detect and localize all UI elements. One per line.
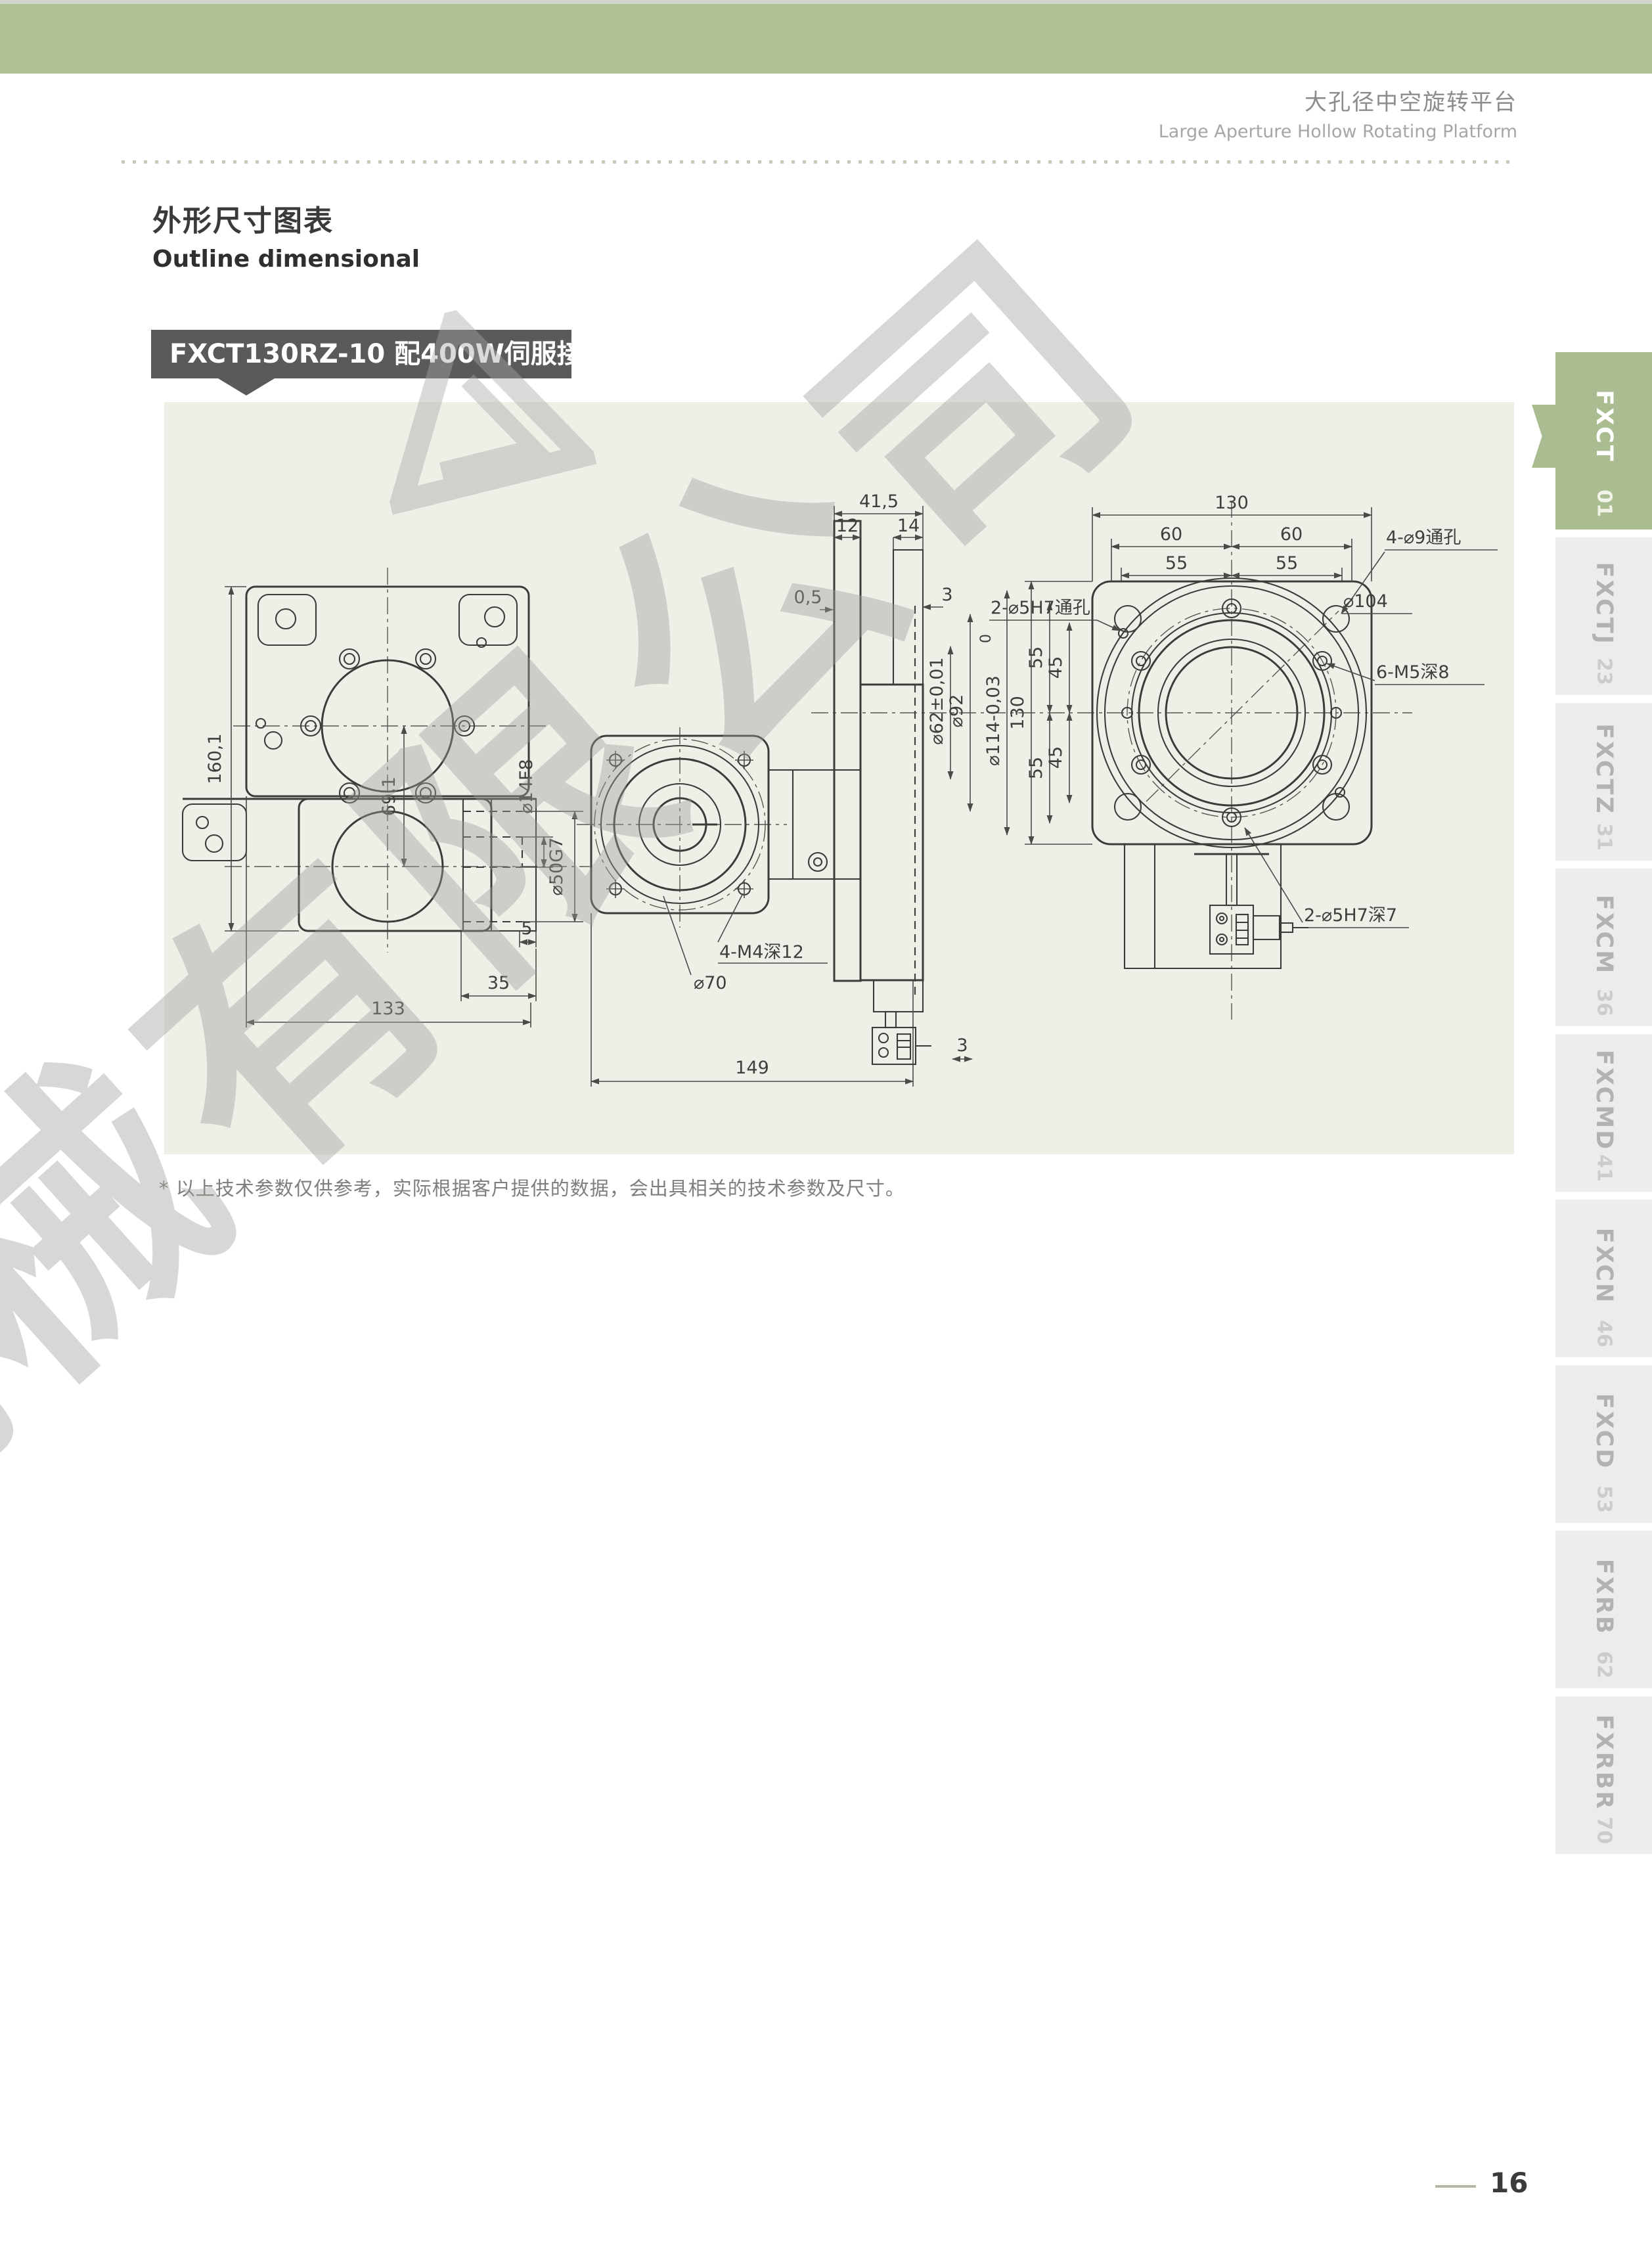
- dim-0-5: 0,5: [794, 587, 822, 608]
- dim-3-bottom: 3: [956, 1035, 968, 1056]
- dim-55-top-right: 55: [1276, 553, 1298, 574]
- tab-label: FXRBR: [1591, 1715, 1617, 1811]
- dim-70: ⌀70: [694, 973, 727, 993]
- outline-drawing: 160,1 69,1 ⌀14F8 ⌀50G7 5 35: [164, 402, 1514, 1154]
- header-title-zh: 大孔径中空旋转平台: [1159, 84, 1517, 116]
- dim-12: 12: [836, 516, 859, 536]
- tab-label: FXCMD: [1591, 1050, 1617, 1151]
- sidebar-tab-fxctz[interactable]: FXCTZ 31: [1555, 703, 1652, 861]
- page-header: 大孔径中空旋转平台 Large Aperture Hollow Rotating…: [1159, 84, 1517, 142]
- sidebar-tab-fxrbr[interactable]: FXRBR 70: [1555, 1696, 1652, 1854]
- catalog-page: 大孔径中空旋转平台 Large Aperture Hollow Rotating…: [0, 0, 1652, 2258]
- dim-60-left: 60: [1160, 524, 1182, 545]
- tab-page-number: 62: [1592, 1651, 1615, 1679]
- dim-60-right: 60: [1280, 524, 1303, 545]
- dim-41-5: 41,5: [859, 491, 899, 512]
- tab-page-number: 36: [1592, 989, 1615, 1016]
- active-tab-notch: [1532, 405, 1556, 468]
- dim-133: 133: [371, 999, 405, 1019]
- tab-label: FXCN: [1591, 1227, 1617, 1304]
- label-4m4: 4-M4深12: [719, 942, 804, 962]
- page-number-rule: [1435, 2185, 1476, 2188]
- tab-page-number: 23: [1592, 658, 1615, 685]
- tab-page-number: 70: [1592, 1817, 1615, 1844]
- dim-shaft-14f8: ⌀14F8: [516, 759, 537, 813]
- tab-label: FXCTZ: [1591, 723, 1617, 815]
- section-title-zh: 外形尺寸图表: [152, 197, 420, 239]
- dim-3-top: 3: [941, 585, 952, 605]
- dim-149: 149: [735, 1058, 769, 1078]
- sidebar-tab-fxcn[interactable]: FXCN 46: [1555, 1200, 1652, 1357]
- tab-page-number: 53: [1592, 1485, 1615, 1513]
- tab-page-number: 31: [1592, 823, 1615, 851]
- section-title: 外形尺寸图表 Outline dimensional: [152, 197, 420, 273]
- sidebar-tab-fxctj[interactable]: FXCTJ 23: [1555, 537, 1652, 695]
- dim-5: 5: [521, 918, 532, 939]
- dim-92: ⌀92: [947, 694, 967, 728]
- dim-35: 35: [487, 973, 510, 993]
- section-title-en: Outline dimensional: [152, 246, 420, 273]
- label-pin-through: 2-⌀5H7通孔: [991, 598, 1090, 618]
- dim-center-69: 69,1: [379, 777, 399, 816]
- tab-label: FXCTJ: [1591, 562, 1617, 645]
- dim-114-upper-tol: 0: [978, 634, 994, 643]
- dim-bore-50g7: ⌀50G7: [547, 838, 567, 896]
- tab-label: FXCM: [1591, 895, 1617, 975]
- dim-45-upper: 45: [1046, 656, 1066, 679]
- sidebar-tab-fxcmd[interactable]: FXCMD 41: [1555, 1034, 1652, 1192]
- tab-page-number: 01: [1592, 489, 1615, 517]
- sidebar-tab-fxcm[interactable]: FXCM 36: [1555, 869, 1652, 1026]
- label-6m5: 6-M5深8: [1376, 662, 1450, 683]
- top-view: 160,1 69,1 ⌀14F8 ⌀50G7 5 35: [183, 568, 590, 1027]
- encoder-connector-side: [872, 1012, 931, 1064]
- model-label-notch: [218, 378, 275, 395]
- tab-label: FXCD: [1591, 1393, 1617, 1470]
- tab-label: FXCT: [1591, 390, 1617, 463]
- sidebar-tab-fxct[interactable]: FXCT 01: [1555, 352, 1652, 530]
- tab-label: FXRB: [1591, 1559, 1617, 1636]
- label-pin-depth: 2-⌀5H7深7: [1304, 905, 1397, 926]
- dim-55-top-left: 55: [1165, 553, 1188, 574]
- model-label: FXCT130RZ-10 配400W伺服接口: [151, 330, 571, 378]
- dim-114: ⌀114-0,03: [983, 675, 1004, 766]
- dotted-separator: [122, 160, 1517, 164]
- dim-45-lower: 45: [1046, 746, 1066, 769]
- tab-page-number: 46: [1592, 1320, 1615, 1347]
- top-green-band: [0, 4, 1652, 74]
- tab-page-number: 41: [1592, 1154, 1615, 1182]
- label-corner-holes: 4-⌀9通孔: [1386, 528, 1461, 548]
- dim-130-left: 130: [1008, 696, 1028, 730]
- rear-flange-view: 130 60 60 55 55 130 55: [989, 493, 1498, 1020]
- header-title-en: Large Aperture Hollow Rotating Platform: [1159, 122, 1517, 142]
- label-104: ⌀104: [1343, 591, 1388, 612]
- dim-55-left-lower: 55: [1026, 757, 1046, 779]
- dim-height-160: 160,1: [205, 733, 225, 784]
- drawing-panel: 160,1 69,1 ⌀14F8 ⌀50G7 5 35: [164, 402, 1514, 1154]
- sidebar-tab-fxrb[interactable]: FXRB 62: [1555, 1531, 1652, 1688]
- page-number: 16: [1490, 2167, 1528, 2199]
- dim-130-top: 130: [1215, 493, 1249, 513]
- footnote: * 以上技术参数仅供参考，实际根据客户提供的数据，会出具相关的技术参数及尺寸。: [159, 1173, 905, 1201]
- dim-14: 14: [897, 516, 920, 536]
- sidebar-tab-fxcd[interactable]: FXCD 53: [1555, 1365, 1652, 1523]
- dim-62: ⌀62±0,01: [927, 657, 947, 744]
- dim-55-left-upper: 55: [1026, 646, 1046, 669]
